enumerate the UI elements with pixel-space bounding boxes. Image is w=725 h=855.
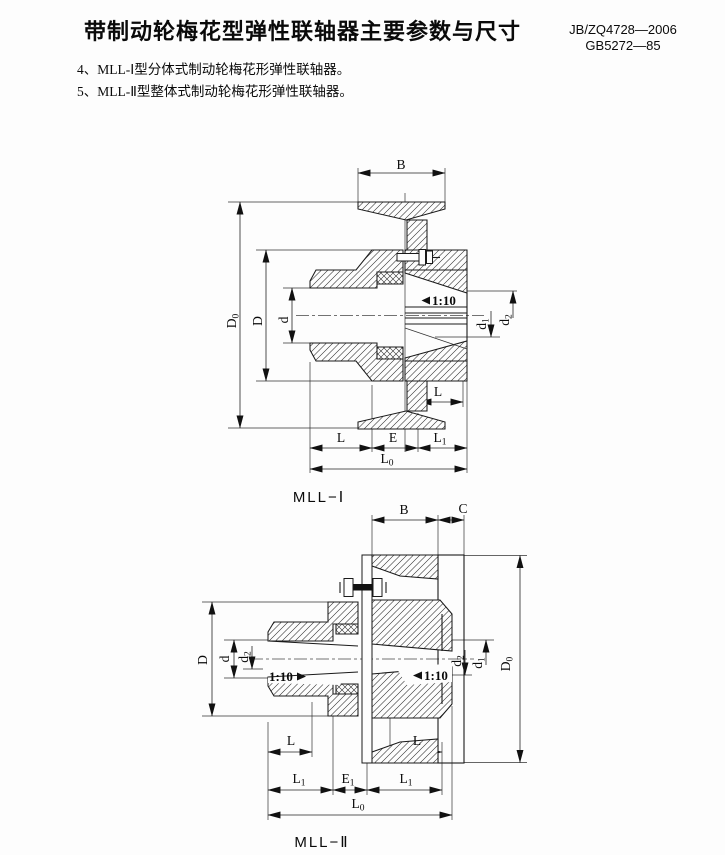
document-page: 带制动轮梅花型弹性联轴器主要参数与尺寸 JB/ZQ4728—2006 GB527… xyxy=(0,0,725,855)
svg-text:1:10: 1:10 xyxy=(424,668,448,683)
fig1-dim-label-L0: L0 xyxy=(381,451,394,469)
fig2-dim-label-B: B xyxy=(399,502,408,517)
svg-text:1:10: 1:10 xyxy=(432,293,456,308)
fig1-dim-label-d2: d2 xyxy=(497,314,515,326)
figure-mll1: B D0 D d 1:10 d1 d2 L L E L1 L0 MLL−Ⅰ xyxy=(222,125,530,510)
fig2-dim-label-E1: E1 xyxy=(342,771,355,789)
fig2-dim-label-D: D xyxy=(195,655,210,665)
fig1-dim-label-L-right: L xyxy=(434,384,442,399)
fig2-dim-label-D0: D0 xyxy=(498,657,516,672)
fig1-elastomer-spider-top xyxy=(377,272,403,284)
fig1-dim-label-D0: D0 xyxy=(224,314,242,329)
figure-mll2: B C D d d2 1:10 1:10 d2 d1 D0 L L L1 E1 … xyxy=(195,500,530,852)
fig2-dim-label-d: d xyxy=(217,655,232,662)
fig1-dim-label-D: D xyxy=(250,316,265,326)
fig2-elastomer-spider-bottom xyxy=(336,684,358,694)
svg-text:1:10: 1:10 xyxy=(269,669,293,684)
fig2-caption: MLL−Ⅱ xyxy=(294,834,349,851)
fig1-dim-label-L1: L1 xyxy=(434,430,447,448)
fig2-dim-label-L1-right: L1 xyxy=(400,771,413,789)
fig2-dim-label-L1-left: L1 xyxy=(293,771,306,789)
fig1-dim-label-d: d xyxy=(276,316,291,323)
fig1-elastomer-spider-bottom xyxy=(377,347,403,359)
fig2-dim-label-d2-right: d2 xyxy=(449,655,467,667)
fig2-dim-label-L0: L0 xyxy=(352,796,365,814)
fig2-elastomer-spider-top xyxy=(336,624,358,634)
fig1-dim-label-E: E xyxy=(389,430,397,445)
fig1-dim-label-d1: d1 xyxy=(474,318,492,330)
fig1-dim-label-B: B xyxy=(396,157,405,172)
note-list: 4、MLL-Ⅰ型分体式制动轮梅花形弹性联轴器。 5、MLL-Ⅱ型整体式制动轮梅花… xyxy=(77,59,353,103)
fig2-dim-label-L-left: L xyxy=(287,733,295,748)
fig2-dim-label-C: C xyxy=(458,501,467,516)
fig1-taper-label: 1:10 xyxy=(422,293,456,308)
note-item-4: 4、MLL-Ⅰ型分体式制动轮梅花形弹性联轴器。 xyxy=(77,59,353,81)
standard-code-gb: GB5272—85 xyxy=(558,38,688,54)
fig2-dim-label-L-right: L xyxy=(413,733,421,748)
fig1-dim-label-L: L xyxy=(337,430,345,445)
standard-codes: JB/ZQ4728—2006 GB5272—85 xyxy=(558,22,688,54)
standard-code-jb: JB/ZQ4728—2006 xyxy=(558,22,688,38)
page-title: 带制动轮梅花型弹性联轴器主要参数与尺寸 xyxy=(84,14,521,46)
note-item-5: 5、MLL-Ⅱ型整体式制动轮梅花形弹性联轴器。 xyxy=(77,81,353,103)
fig2-dim-label-d2-left: d2 xyxy=(236,651,254,663)
